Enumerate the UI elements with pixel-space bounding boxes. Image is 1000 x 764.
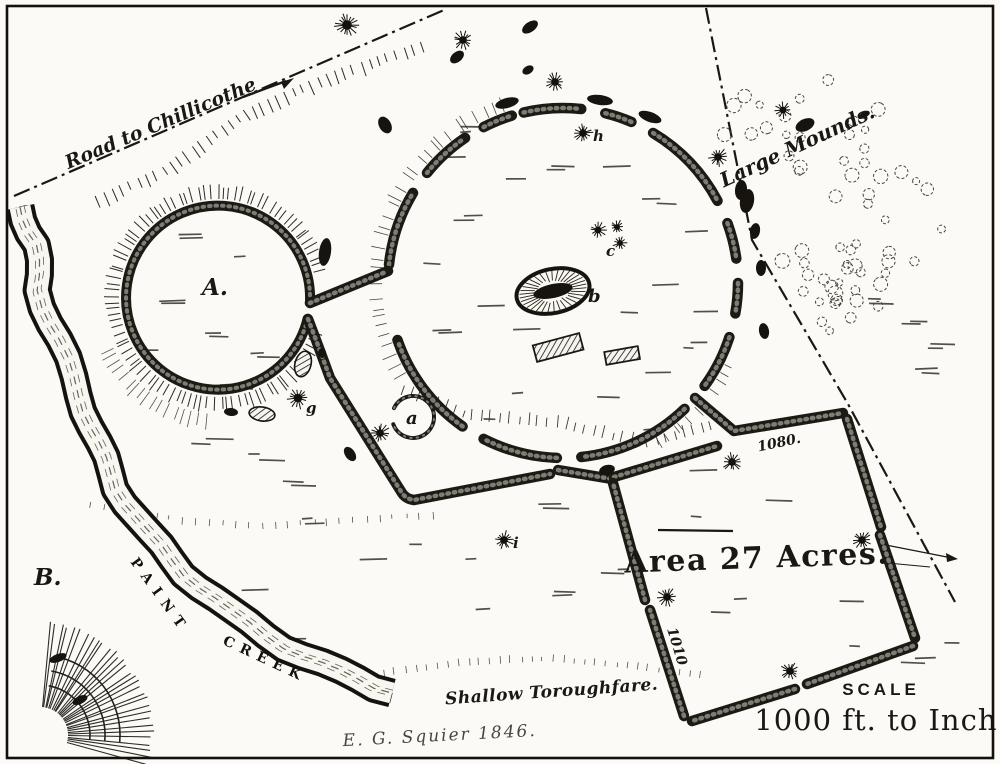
feature-letter-c: c: [606, 242, 615, 260]
feature-letter-a: a: [406, 408, 418, 429]
map-canvas: Road to Chillicothe Large Mounds. Area 2…: [0, 0, 1000, 764]
feature-letter-A: A.: [200, 274, 228, 301]
scale-heading: SCALE: [842, 680, 920, 699]
feature-letter-h: h: [593, 127, 604, 145]
scale-value: 1000 ft. to Inch.: [754, 703, 1000, 737]
feature-letter-i: i: [513, 534, 519, 552]
area-dash: [658, 530, 733, 531]
feature-letter-b: b: [588, 286, 601, 307]
feature-letter-g: g: [306, 399, 317, 417]
feature-letter-B: B.: [33, 564, 61, 591]
archaeological-survey-map: Road to Chillicothe Large Mounds. Area 2…: [0, 0, 1000, 764]
